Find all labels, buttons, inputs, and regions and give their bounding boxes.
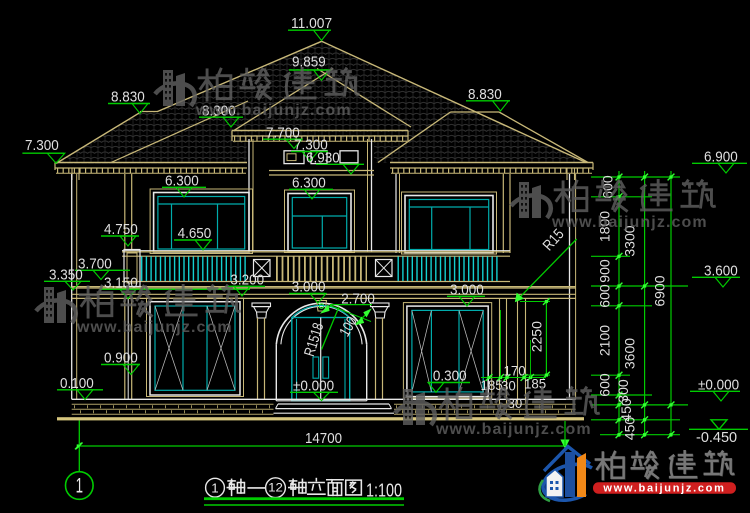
svg-text:www.baijunjz.com: www.baijunjz.com (76, 319, 233, 336)
svg-text:4.650: 4.650 (178, 225, 212, 242)
svg-text:www.baijunjz.com: www.baijunjz.com (195, 102, 352, 119)
svg-text:450: 450 (623, 417, 638, 440)
svg-text:900: 900 (598, 259, 613, 282)
svg-text:1: 1 (76, 475, 83, 498)
svg-text:2100: 2100 (598, 325, 613, 356)
svg-text:www.baijunjz.com: www.baijunjz.com (602, 482, 725, 494)
svg-text:170: 170 (504, 364, 526, 379)
svg-text:14700: 14700 (305, 430, 342, 447)
svg-text:1: 1 (211, 480, 218, 495)
svg-text:3600: 3600 (623, 338, 638, 369)
svg-text:600: 600 (598, 284, 613, 307)
svg-text:12: 12 (268, 483, 283, 495)
svg-text:600: 600 (598, 373, 613, 396)
svg-text:9.859: 9.859 (292, 53, 326, 70)
svg-text:2250: 2250 (529, 321, 545, 352)
svg-text:30: 30 (501, 379, 516, 394)
svg-text:-0.450: -0.450 (696, 429, 737, 446)
svg-text:www.baijunjz.com: www.baijunjz.com (435, 421, 592, 438)
svg-text:6900: 6900 (653, 275, 668, 306)
svg-text:7.300: 7.300 (25, 137, 59, 154)
svg-text:www.baijunjz.com: www.baijunjz.com (551, 214, 708, 231)
